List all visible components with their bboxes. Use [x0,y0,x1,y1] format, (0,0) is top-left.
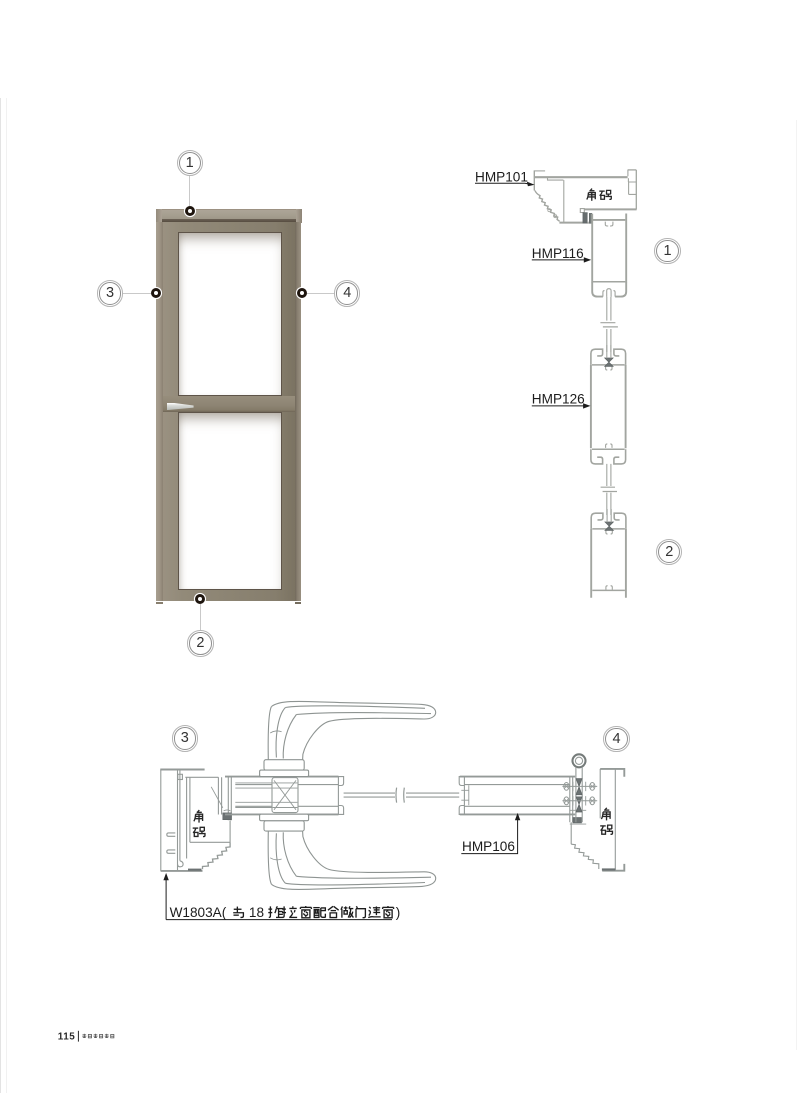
svg-text:HMP126: HMP126 [532,392,585,407]
svg-text:W1803A(: W1803A( [170,905,227,920]
svg-text:115: 115 [58,1031,75,1042]
svg-text:HMP116: HMP116 [532,246,584,261]
svg-text:HMP101: HMP101 [475,170,528,185]
svg-text:18: 18 [249,905,264,920]
svg-text:HMP106: HMP106 [462,839,515,854]
svg-text:): ) [396,905,401,920]
